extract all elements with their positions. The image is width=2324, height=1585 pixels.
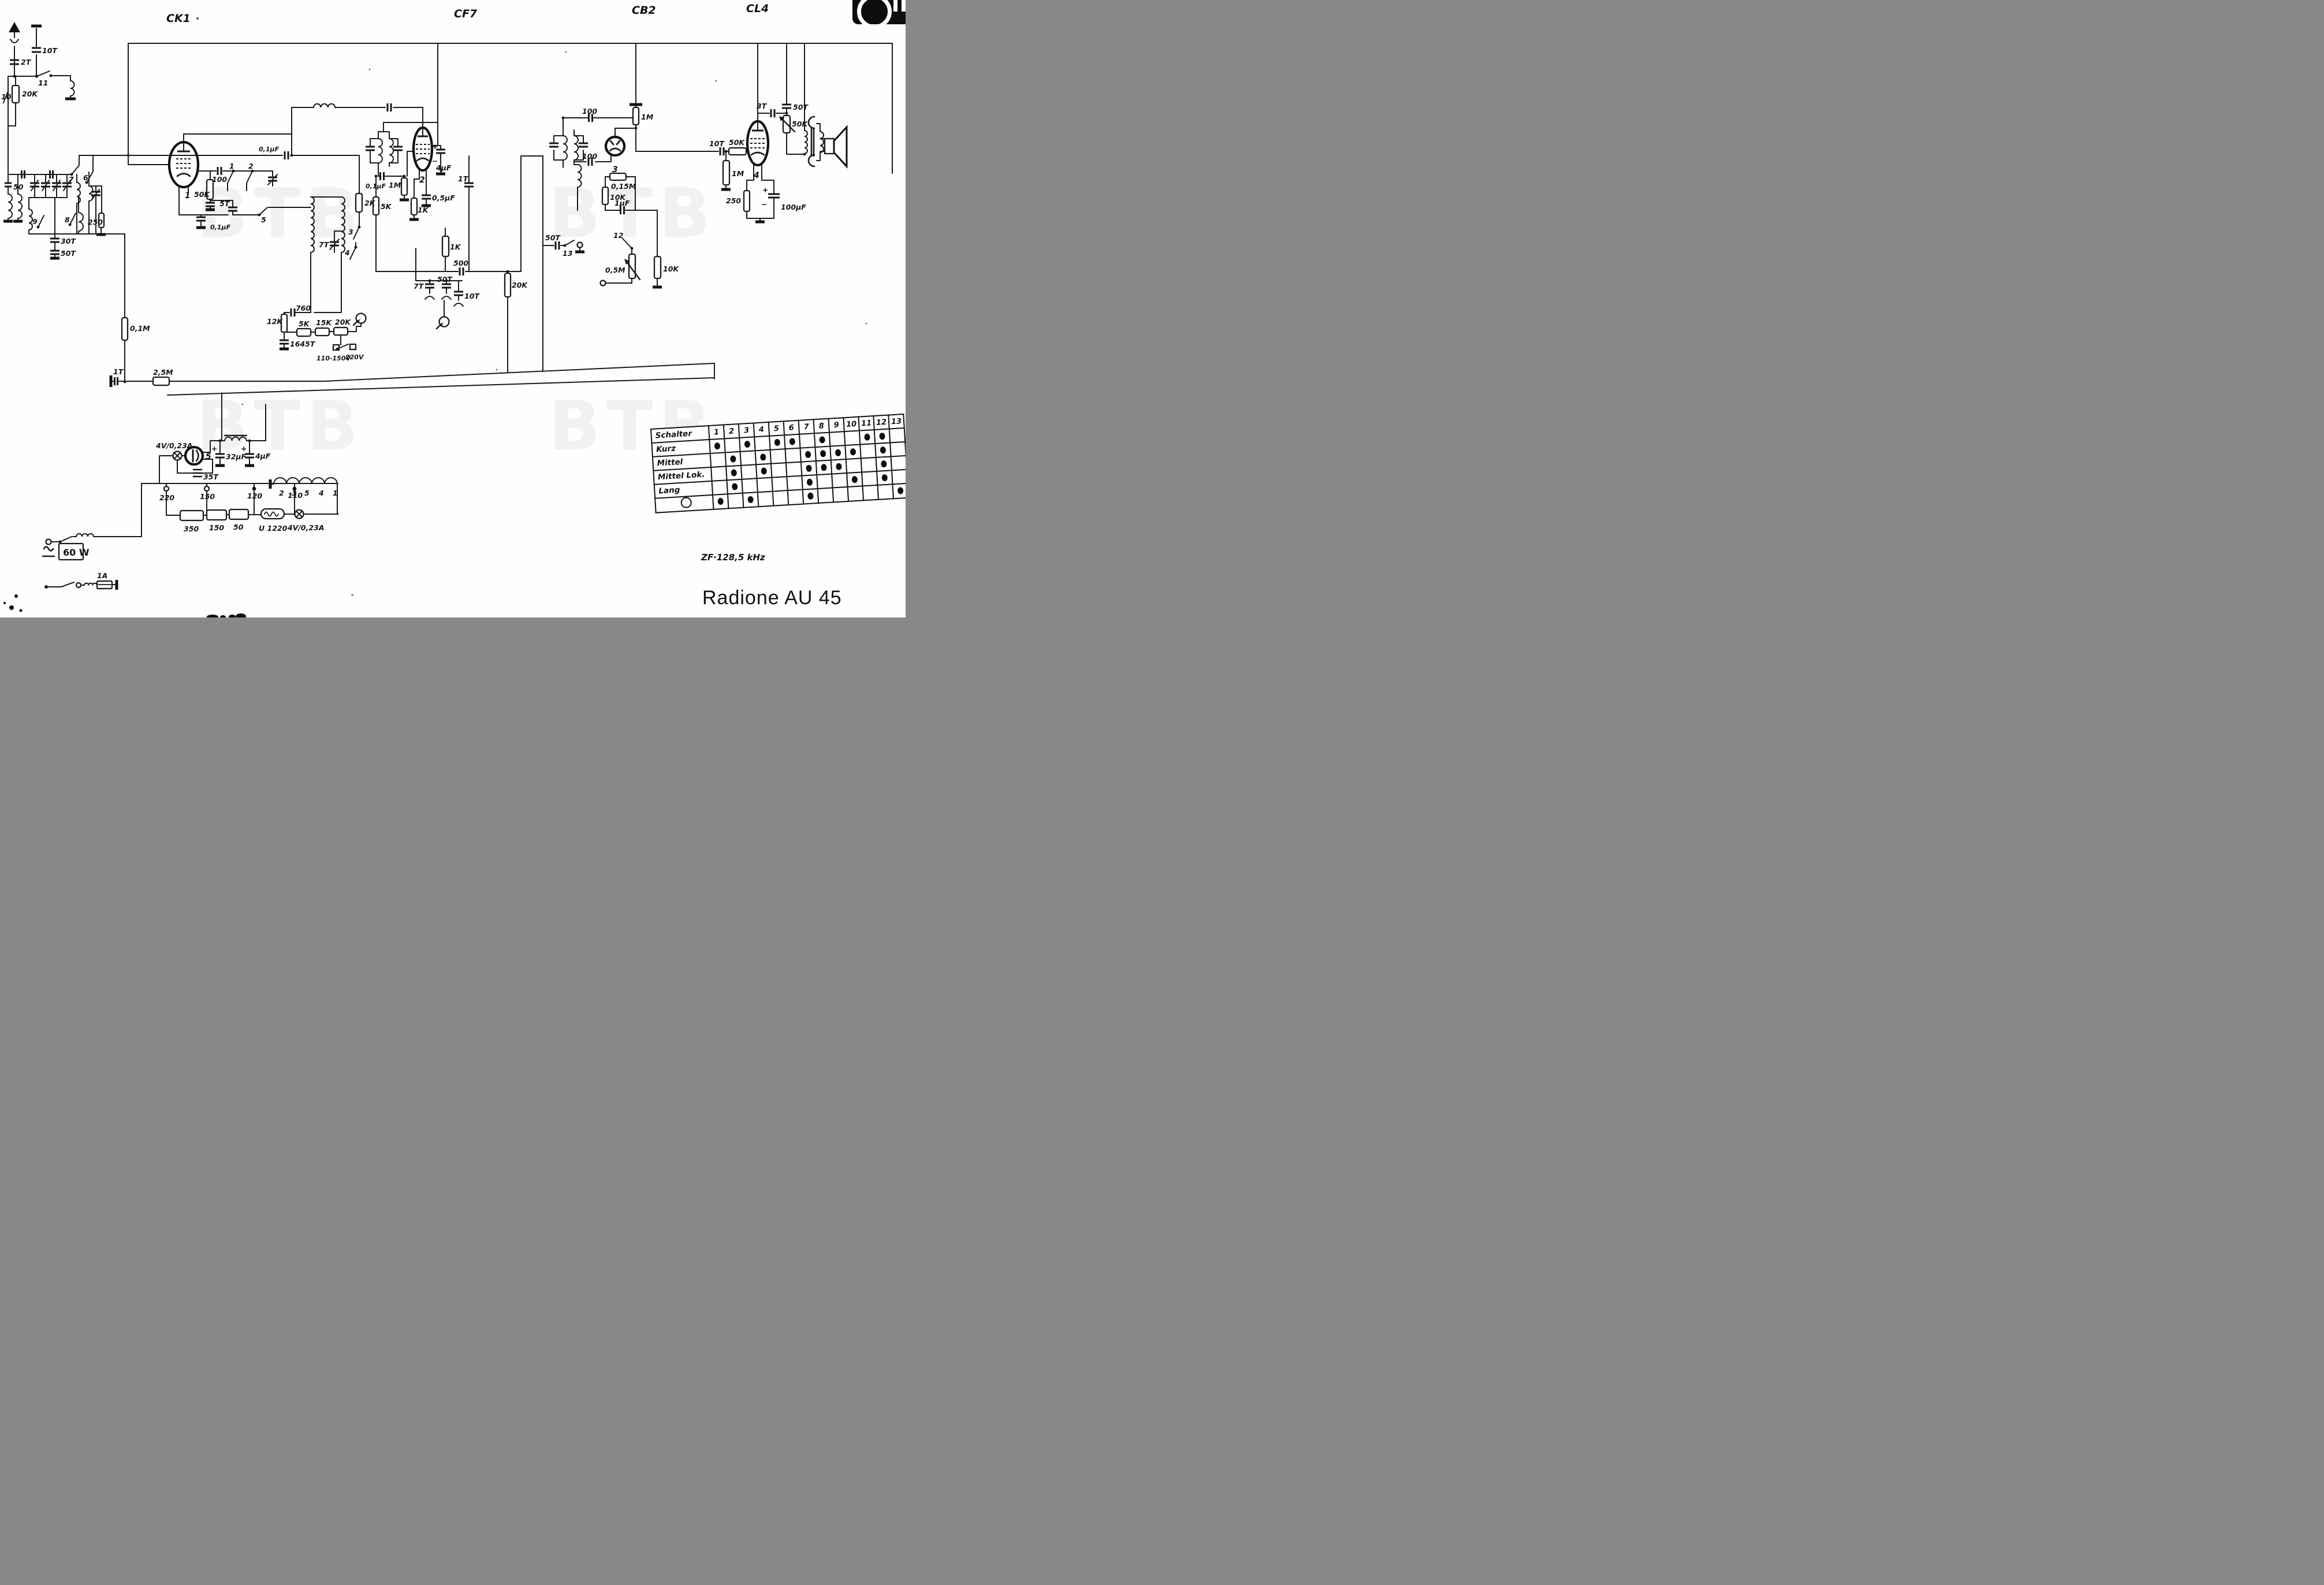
resistor-10K-a [602, 187, 608, 204]
switch-cell-kurz-8 [814, 433, 830, 447]
switch-column-8: 8 [814, 419, 829, 433]
label-tap150: 150 [200, 492, 215, 501]
label-h5: 5 [304, 489, 310, 497]
schematic-drawing: CK1 CF7 CB2 CL4 10T 2T 11 10 20K 50 7 6 … [0, 0, 906, 617]
label-c01uF-k1: 0,1µF [210, 224, 231, 231]
label-c1T-avc: 1T [113, 367, 124, 376]
contact-dot [807, 478, 813, 486]
contact-dot [836, 463, 842, 470]
label-plus2: + [762, 185, 768, 194]
label-sw13: 13 [563, 249, 572, 258]
brand-stamp [852, 0, 906, 24]
avc-rail-2 [167, 378, 714, 395]
antenna-section [3, 22, 76, 179]
label-c32uF: 32µF [226, 452, 247, 461]
switch-cell-kurz-11 [859, 430, 875, 444]
label-sw10: 10 [1, 92, 12, 101]
label-r2K: 2K [364, 199, 376, 207]
af-cl4 [636, 103, 847, 222]
switch-cell--4 [758, 492, 773, 507]
label-h3: 3 [292, 489, 297, 497]
label-sw1: 1 [229, 162, 234, 170]
edge-artifacts [3, 594, 246, 617]
label-c4uF-ps: 4µF [255, 452, 271, 460]
switch-cell-lang-6 [787, 476, 802, 490]
schematic-page: BTB BTB BTB BTB [0, 0, 906, 617]
switch-cell-kurz-1 [709, 438, 725, 453]
switch-column-5: 5 [769, 421, 784, 436]
label-c7T-det: 7T [414, 282, 424, 291]
contact-dot [806, 464, 812, 472]
speaker-coil [825, 139, 834, 154]
bplus-rail [128, 43, 892, 173]
label-r10K-b: 10K [663, 265, 679, 273]
contact-dot [864, 433, 870, 441]
label-barretter: U 1220 [259, 524, 288, 533]
switch-cell-mittellok-9 [831, 459, 847, 474]
switch-cell-kurz-12 [874, 429, 890, 443]
label-c5T: 5T [219, 199, 230, 208]
switch-cell-lang-13 [892, 470, 906, 484]
switch-cell-mittellok-11 [861, 457, 877, 472]
switch-cell-mittel-5 [770, 449, 786, 463]
switch-cell-mittellok-3 [741, 464, 757, 479]
switch-cell-lang-7 [802, 475, 817, 489]
label-c50T-det: 50T [437, 275, 453, 284]
label-c100uF: 100µF [781, 203, 806, 211]
switch-cell--6 [788, 490, 803, 505]
contact-dot [821, 464, 827, 471]
label-c1645T: 1645T [290, 340, 316, 348]
contact-dot [819, 436, 825, 444]
resistor-50 [229, 509, 248, 519]
label-r1M-top: 1M [641, 113, 654, 121]
cap-series-rail [388, 103, 391, 111]
contact-dot [732, 483, 738, 490]
contact-dot [717, 498, 724, 505]
label-sw5: 5 [261, 215, 266, 224]
avc-rail-1 [111, 363, 714, 381]
resistor-2K [356, 194, 362, 212]
resistor-250-k4 [744, 191, 750, 211]
switch-cell-mittel-9 [830, 445, 846, 460]
label-lamp-a: 4V/0,23A [155, 441, 192, 450]
switch-cell-kurz-4 [754, 436, 770, 451]
label-r250-rf: 250 [88, 218, 103, 226]
label-c100-ifin: 100 [582, 107, 597, 116]
switch-cell-lang-12 [877, 470, 892, 485]
switch-column-9: 9 [829, 418, 844, 432]
resistor-10K-b [654, 256, 661, 278]
switch-cell--11 [863, 485, 878, 500]
label-c2T: 2T [21, 58, 32, 66]
switch-cell-mittellok-10 [846, 458, 862, 472]
label-plus1: + [432, 142, 438, 151]
label-h2: 2 [279, 489, 284, 497]
contact-dot [747, 496, 754, 504]
stamp-mark-icon [893, 0, 897, 12]
contact-dot [731, 469, 737, 477]
label-c35T: 35T [203, 472, 219, 481]
switch-cell-kurz-5 [769, 435, 785, 449]
label-c4uF-scr: 4µF [435, 163, 452, 172]
label-tube3: 3 [612, 165, 618, 174]
label-c01uF-hf: 0,1µF [259, 146, 280, 153]
switch-column-1: 1 [709, 425, 724, 439]
label-lamp-b: 4V/0,23A [287, 523, 324, 532]
contact-dot [881, 460, 887, 467]
label-c500: 500 [453, 259, 468, 267]
switch-cell--12 [877, 484, 893, 499]
if2-cb2 [543, 105, 662, 287]
switch-cell-mittel-10 [845, 445, 861, 459]
label-c50T-ph: 50T [545, 233, 561, 242]
tube-type-cl4: CL4 [746, 2, 769, 15]
label-sw9: 9 [32, 217, 38, 226]
switch-cell-mittel-3 [740, 451, 756, 465]
label-c10T-af: 10T [709, 139, 725, 148]
label-r1M-g2: 1M [389, 181, 401, 189]
switch-cell--3 [743, 492, 758, 507]
switch-cell--10 [848, 486, 863, 501]
label-tube4: 4 [753, 171, 759, 180]
contact-dot [807, 492, 814, 500]
switch-column-2: 2 [724, 424, 739, 438]
label-r20K-pad: 20K [335, 318, 351, 326]
contact-dot [879, 432, 885, 440]
label-sw12: 12 [613, 231, 623, 240]
switch-cell-mittel-11 [860, 444, 876, 458]
switch-cell-mittellok-12 [876, 456, 892, 471]
label-sw7: 7 [69, 175, 74, 184]
tube-3-envelope [606, 137, 624, 155]
switch-cell-mittel-13 [890, 442, 906, 456]
resistor-50K-af [729, 148, 746, 155]
label-c01uF-g2: 0,1µF [366, 183, 386, 190]
band-switch-coils [3, 155, 222, 383]
contact-dot [789, 438, 795, 445]
switch-cell--2 [728, 493, 743, 508]
switch-cell-mittel-8 [815, 447, 830, 461]
label-c50T-rf: 50T [61, 249, 76, 258]
label-plus4: + [241, 444, 247, 453]
label-c50T-tone: 50T [793, 103, 809, 111]
switch-cell-kurz-9 [829, 431, 845, 446]
label-plus3: + [211, 444, 217, 453]
resistor-1M-top [633, 107, 639, 125]
resistor-15K [315, 328, 329, 336]
switch-column-12: 12 [873, 415, 889, 430]
label-r15K: 15K [316, 318, 332, 327]
label-c100-d: 100 [582, 152, 597, 161]
contact-dot [880, 446, 887, 453]
tube-type-ck1: CK1 [166, 12, 191, 25]
label-c10T-det: 10T [464, 292, 480, 300]
switch-column-10: 10 [843, 417, 859, 431]
switch-cell-mittel-1 [710, 452, 726, 467]
contact-dot [850, 448, 856, 455]
switch-cell-lang-2 [727, 479, 743, 494]
label-c30T: 30T [61, 237, 76, 245]
resistor-20K-pad [334, 328, 348, 335]
label-r01M: 0,1M [130, 324, 150, 333]
switch-cell-mittellok-13 [891, 456, 906, 470]
contact-dot [805, 451, 811, 458]
switch-column-6: 6 [784, 421, 799, 435]
label-tube1: 1 [185, 191, 191, 200]
label-r50K-osc: 50K [194, 190, 210, 199]
switch-cell-mittellok-8 [816, 460, 832, 475]
label-r5K-g2: 5K [381, 202, 392, 211]
stamp-mark-icon [902, 0, 906, 12]
label-r1K-det: 1K [450, 243, 461, 251]
switch-column-4: 4 [754, 422, 769, 437]
label-c10T-ant: 10T [42, 46, 58, 55]
contact-dot [761, 467, 767, 475]
label-c1T-cpl: 1T [458, 174, 469, 183]
switch-cell-kurz-7 [799, 433, 815, 448]
label-r150: 150 [209, 523, 224, 532]
label-r350: 350 [184, 524, 199, 533]
switch-column-7: 7 [799, 419, 814, 434]
label-r20K-det: 20K [512, 281, 528, 289]
contact-dot [851, 475, 858, 483]
contact-dot [714, 442, 721, 449]
label-v220: 220V [345, 354, 364, 361]
contact-dot [820, 450, 826, 457]
page-title: Radione AU 45 [702, 587, 842, 609]
switch-column-13: 13 [888, 414, 904, 429]
resistor-5K-pad [297, 329, 311, 336]
label-power: 60 W [63, 547, 90, 558]
resistor-1K-k2 [411, 198, 417, 215]
phono-icon [680, 497, 692, 508]
label-r250-k4: 250 [726, 196, 741, 205]
label-r50: 50 [233, 523, 244, 531]
mixer-ck1 [127, 134, 362, 228]
label-tube5: 5 [206, 452, 211, 462]
switch-cell-mittellok-5 [771, 463, 787, 477]
switch-cell-kurz-13 [889, 428, 905, 442]
contact-dot [774, 438, 780, 446]
switch-cell-mittellok-6 [786, 462, 802, 477]
contact-dot [897, 487, 904, 494]
label-tap120: 120 [247, 492, 262, 500]
resistor-350 [180, 511, 203, 520]
contact-dot [881, 474, 888, 481]
contact-dot [730, 455, 736, 463]
switch-cell-lang-9 [832, 473, 847, 488]
label-c7T-osc: 7T [319, 240, 330, 249]
label-c50: 50 [13, 183, 24, 191]
switch-cell-mittellok-4 [756, 464, 772, 478]
label-c1uF: 1µF [614, 199, 630, 207]
switch-cell-lang-4 [757, 478, 772, 492]
label-tap220: 220 [159, 493, 174, 502]
switch-column-3: 3 [739, 423, 754, 437]
switch-cell--13 [892, 483, 906, 498]
label-sw4: 4 [344, 248, 350, 257]
switch-cell--8 [818, 488, 833, 503]
resistor-1K-det [442, 236, 449, 256]
switch-row-label [655, 495, 713, 513]
switch-cell-lang-1 [712, 480, 728, 494]
switch-cell-mittel-7 [800, 447, 815, 462]
switch-cell-kurz-6 [784, 434, 800, 449]
label-c05uF: 0,5µF [432, 194, 455, 202]
contact-dot [744, 440, 751, 448]
label-r1K-k2: 1K [418, 206, 429, 214]
switch-cell-lang-5 [772, 477, 787, 491]
speaker-horn [834, 127, 847, 166]
label-c100-g1: 100 [212, 175, 227, 184]
label-r50K-tone: 50K [792, 120, 808, 128]
switch-cell-kurz-3 [739, 437, 755, 451]
label-sw3: 3 [348, 228, 353, 236]
label-c3T: 3T [757, 102, 768, 110]
switch-cell-lang-8 [817, 474, 832, 489]
label-r1M-af: 1M [732, 169, 744, 178]
resistor-1M-af [723, 161, 729, 185]
switch-cell-lang-11 [862, 471, 877, 486]
tube-type-cf7: CF7 [454, 8, 478, 20]
label-r50K-af: 50K [729, 138, 745, 147]
cap-1T-avc [115, 377, 118, 385]
label-minus2: − [761, 200, 767, 209]
label-r12K: 12K [267, 317, 283, 326]
switch-cell--7 [803, 489, 818, 504]
switch-cell-mittel-2 [725, 452, 741, 466]
switch-cell-mittellok-1 [711, 466, 727, 481]
if-frequency: ZF·128,5 kHz [701, 552, 765, 563]
switch-cell-lang-3 [742, 478, 757, 493]
label-r5K-pad: 5K [299, 319, 310, 328]
switch-cell--9 [833, 487, 848, 502]
label-sw11: 11 [38, 79, 48, 87]
switch-column-11: 11 [858, 416, 874, 430]
label-h1: 1 [333, 489, 338, 497]
switch-cell--5 [773, 490, 788, 505]
resistor-1M-g2 [401, 178, 407, 195]
resistor-20K-det [505, 273, 511, 297]
switch-cell--1 [713, 494, 728, 509]
coil-top-rail [314, 104, 335, 107]
switch-cell-mittel-6 [785, 448, 800, 463]
label-r05M: 0,5M [605, 266, 625, 274]
label-r25M: 2,5M [153, 368, 173, 377]
label-r015M: 0,15M [611, 182, 636, 191]
switch-cell-mittel-4 [755, 450, 771, 464]
switch-cell-lang-10 [847, 472, 862, 486]
switch-table: Schalter12345678910111213KurzMittelMitte… [650, 414, 906, 514]
switch-cell-mittel-12 [875, 442, 891, 457]
label-sw2: 2 [248, 162, 254, 170]
contact-dot [760, 453, 766, 461]
label-sw8: 8 [65, 215, 70, 224]
label-r20K-ant: 20K [22, 90, 38, 98]
tube-type-cb2: CB2 [632, 4, 656, 17]
plate-rail [292, 107, 423, 155]
contact-dot [835, 449, 841, 456]
label-sw6: 6 [83, 173, 88, 182]
switch-cell-kurz-10 [844, 431, 860, 445]
switch-cell-mittellok-2 [726, 466, 742, 480]
switch-cell-mittellok-7 [801, 461, 817, 475]
label-h4: 4 [318, 489, 324, 497]
resistor-2.5M [153, 377, 169, 385]
label-fuse: 1A [97, 571, 107, 580]
label-c760: 760 [296, 304, 311, 312]
label-tube2: 2 [419, 176, 425, 185]
switch-cell-kurz-2 [724, 438, 740, 452]
resistor-150 [207, 510, 226, 520]
oscillator-section [280, 197, 366, 350]
